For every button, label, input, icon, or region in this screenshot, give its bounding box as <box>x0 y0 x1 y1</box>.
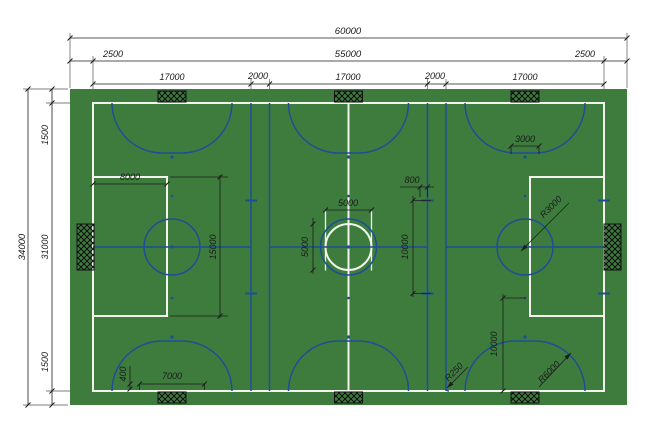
drawing-canvas: 60000 2500 55000 2500 17000 2000 17000 2… <box>0 0 650 425</box>
dim-label-penalty-width: 15000 <box>208 234 218 259</box>
field-plan-drawing: 60000 2500 55000 2500 17000 2000 17000 2… <box>0 0 650 425</box>
goal-bottom-3 <box>511 392 539 403</box>
goal-top-3 <box>511 91 539 102</box>
dim-label-play-height: 31000 <box>40 234 50 259</box>
goal-bottom-2 <box>335 392 363 403</box>
dim-label-margin-right: 2500 <box>574 49 595 59</box>
dim-label-mark-length: 800 <box>404 175 419 185</box>
dim-label-margin-left: 2500 <box>102 49 123 59</box>
goal-bottom-1 <box>158 392 186 403</box>
dim-label-circle-height: 5000 <box>300 237 310 257</box>
dim-label-gap1: 2000 <box>247 71 268 81</box>
dim-label-circle-width: 5000 <box>338 198 358 208</box>
dim-label-total-height: 34000 <box>17 233 28 260</box>
dim-label-offset: 400 <box>118 366 128 381</box>
dim-label-goal-width: 3000 <box>515 134 535 144</box>
dim-label-margin-top: 1500 <box>40 125 50 145</box>
dim-label-margin-bottom: 1500 <box>40 352 50 372</box>
goal-right <box>604 224 621 270</box>
dim-label-penalty-depth: 8000 <box>120 172 140 182</box>
dim-label-pitch3-width: 17000 <box>512 72 537 82</box>
dim-label-total-width: 60000 <box>335 26 362 37</box>
dim-label-play-width: 55000 <box>335 49 362 60</box>
dim-label-pitch2-width: 17000 <box>335 72 360 82</box>
goal-left <box>77 224 94 270</box>
dim-label-ten-meter: 10000 <box>400 234 410 259</box>
goal-top-2 <box>335 91 363 102</box>
dim-label-ten-meter-bottom: 10000 <box>489 331 499 356</box>
dim-label-gap2: 2000 <box>424 71 445 81</box>
dim-label-pitch1-width: 17000 <box>159 72 184 82</box>
dim-label-goal-zone: 7000 <box>162 371 182 381</box>
goal-top-1 <box>158 91 186 102</box>
